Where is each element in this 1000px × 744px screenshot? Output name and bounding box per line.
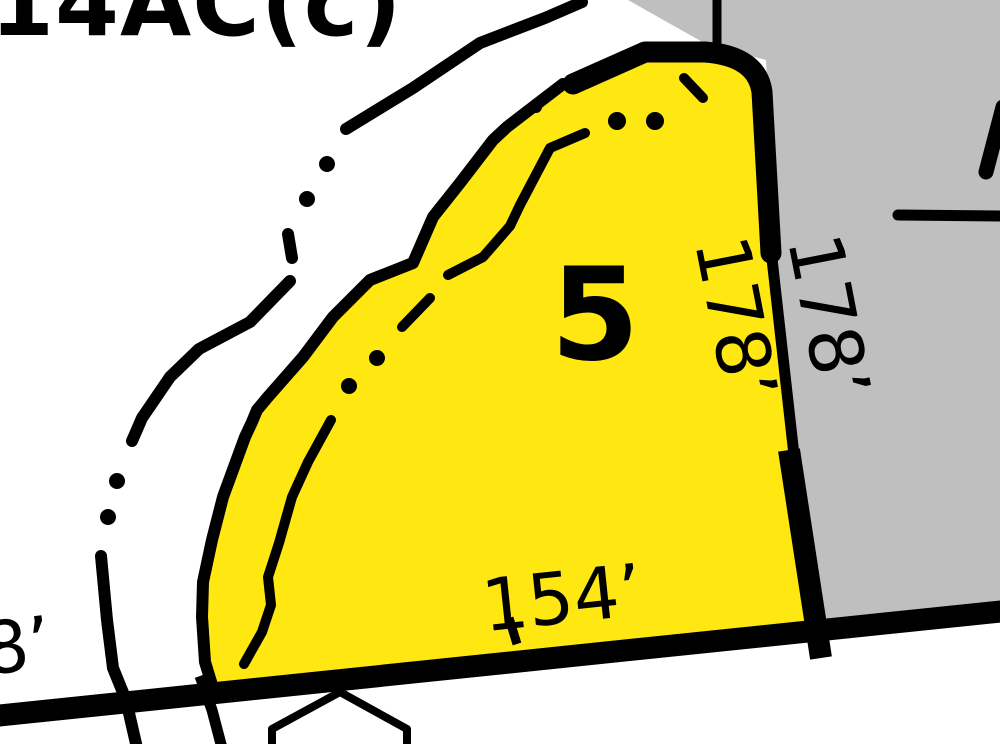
dimension-frontage: 154’ xyxy=(479,554,646,642)
lot-number-label: 5 xyxy=(500,252,690,380)
adjacent-parcel-line xyxy=(898,215,1000,216)
dimension-edge-partial: 8’ xyxy=(0,606,55,686)
area-label: 14AC(c) xyxy=(0,0,402,50)
parcel-map: 14AC(c) 5 178’ 178’ 154’ 8’ xyxy=(0,0,1000,744)
building-outline xyxy=(272,692,407,744)
boundary-survey-dot xyxy=(530,101,542,113)
